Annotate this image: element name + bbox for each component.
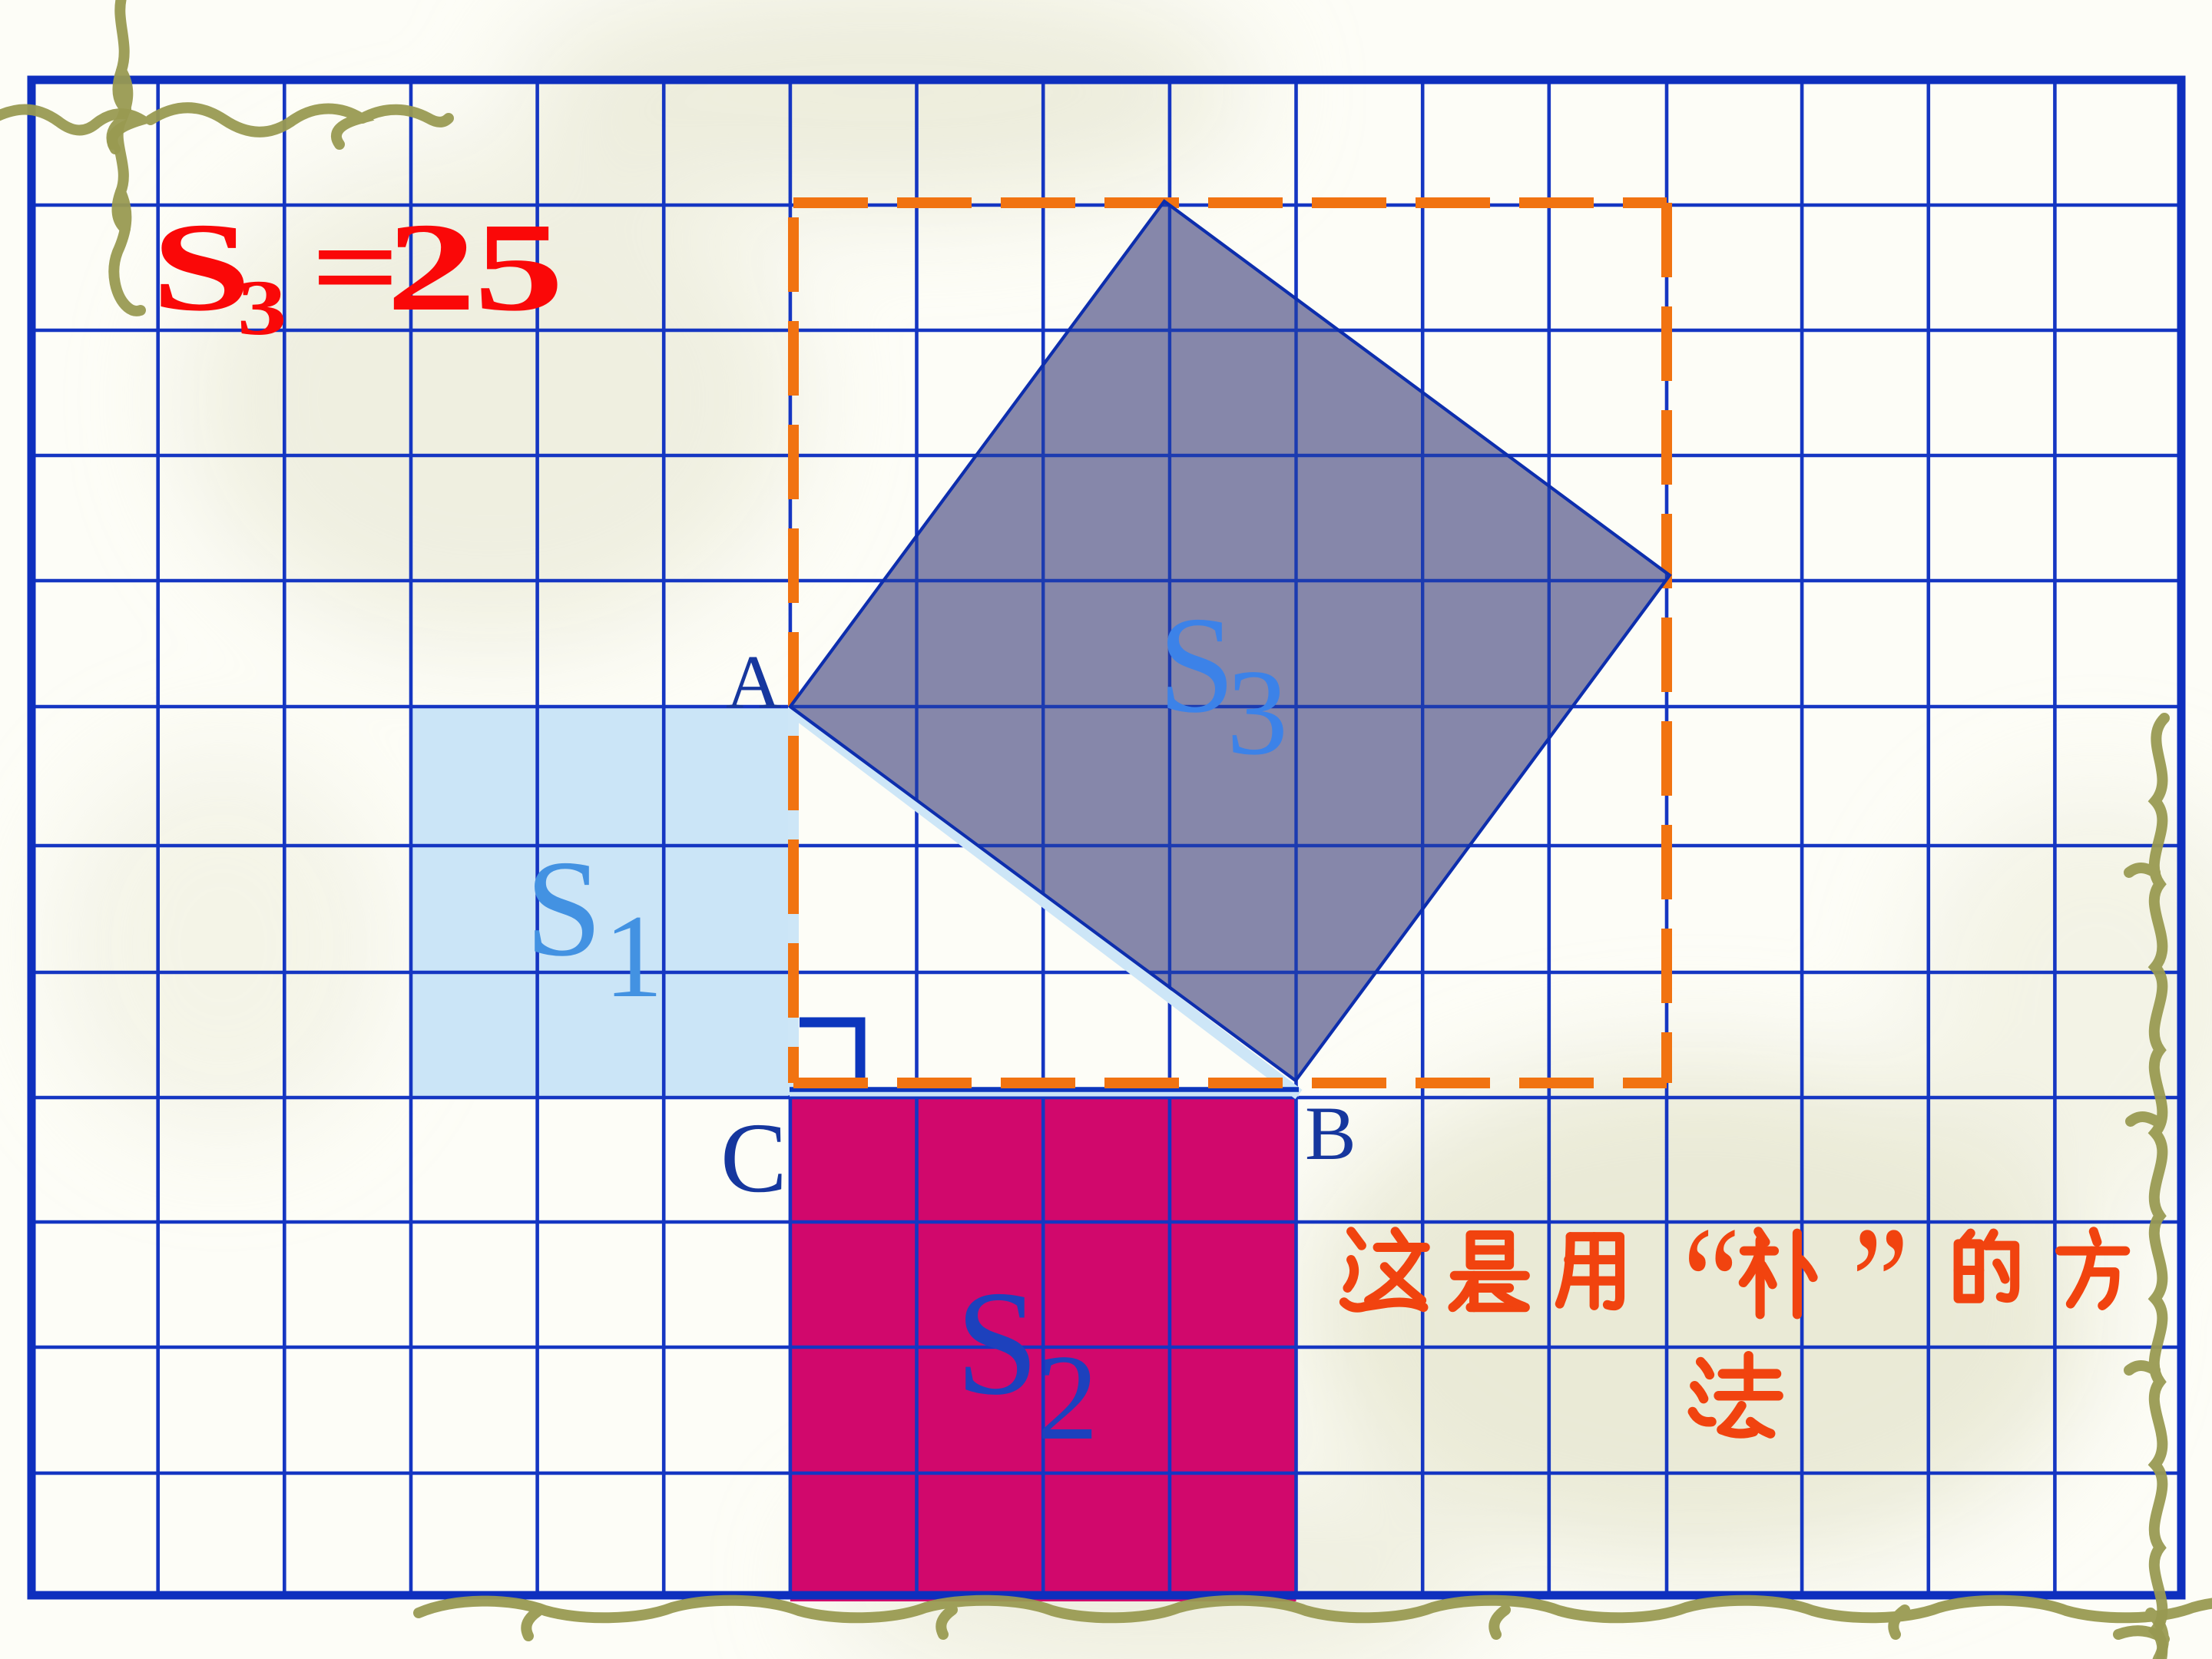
svg-text:S: S	[525, 832, 602, 985]
svg-text:B: B	[1305, 1091, 1356, 1176]
svg-text:5: 5	[474, 197, 564, 337]
svg-text:”: ”	[1852, 1194, 1909, 1373]
svg-text:2: 2	[386, 197, 476, 337]
svg-text:1: 1	[604, 890, 664, 1022]
svg-text:S: S	[955, 1260, 1038, 1426]
svg-text:2: 2	[1037, 1329, 1098, 1465]
svg-text:A: A	[726, 639, 781, 724]
svg-text:C: C	[720, 1103, 787, 1214]
svg-text:3: 3	[237, 264, 286, 352]
svg-text:S: S	[151, 197, 251, 337]
svg-text:“: “	[1683, 1194, 1740, 1373]
svg-text:S: S	[1158, 588, 1235, 741]
svg-text:3: 3	[1227, 644, 1288, 780]
